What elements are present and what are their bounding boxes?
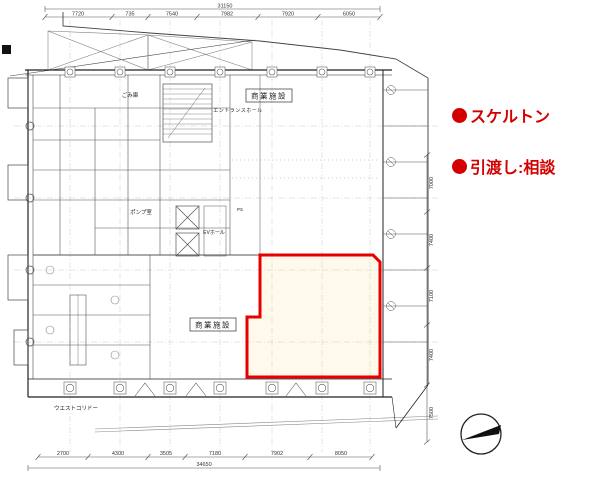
dim-bottom-seg-4: 7180 xyxy=(209,451,221,457)
dim-right-seg-2: 7400 xyxy=(429,234,435,246)
note-skeleton-label: スケルトン xyxy=(470,103,550,127)
dim-bottom-seg-6: 8050 xyxy=(335,451,347,457)
dim-bottom-seg-3: 3505 xyxy=(160,451,172,457)
dim-top-seg-2: 735 xyxy=(125,12,134,18)
note-handover-label: 引渡し:相談 xyxy=(470,154,555,178)
dim-bottom-seg-2: 4300 xyxy=(112,451,124,457)
dim-bottom-seg-5: 7902 xyxy=(271,451,283,457)
dim-top-total: 31150 xyxy=(218,4,233,10)
dim-top-seg-6: 6050 xyxy=(343,12,355,18)
note-handover: 引渡し:相談 xyxy=(452,154,555,178)
dim-bottom-seg-1: 2700 xyxy=(57,451,69,457)
dim-right-seg-3: 7100 xyxy=(429,290,435,302)
dim-top-seg-3: 7540 xyxy=(166,12,178,18)
label-entrance-hall: エントランスホール xyxy=(213,108,262,114)
dim-right-seg-5: 7500 xyxy=(429,407,435,419)
site-marker xyxy=(2,45,11,54)
red-bullet-icon xyxy=(452,159,467,174)
floor-plan-screenshot: 31150 7720 735 7540 7982 7920 6050 2700 … xyxy=(0,0,600,484)
label-commercial-lower: 商業施設 xyxy=(195,320,231,330)
dimension-bottom-labels: 2700 4300 3505 7180 7902 8050 34650 xyxy=(57,451,347,468)
dim-top-seg-5: 7920 xyxy=(282,12,294,18)
label-pump-room: ポンプ室 xyxy=(130,208,152,216)
bottom-column-row xyxy=(64,382,376,396)
dimension-top-labels: 31150 7720 735 7540 7982 7920 6050 xyxy=(72,4,355,18)
dim-top-seg-1: 7720 xyxy=(72,12,84,18)
label-commercial-upper: 商業施設 xyxy=(251,91,287,101)
dim-bottom-total: 34650 xyxy=(196,462,211,468)
note-skeleton: スケルトン xyxy=(452,103,550,127)
right-bay-strip xyxy=(383,86,428,343)
top-column-row xyxy=(65,67,375,77)
floor-plan-drawing: 31150 7720 735 7540 7982 7920 6050 2700 … xyxy=(0,0,600,484)
red-bullet-icon xyxy=(452,108,467,123)
dim-right-seg-4: 7400 xyxy=(429,349,435,361)
compass-icon xyxy=(461,414,501,454)
dimension-top xyxy=(43,6,383,20)
dim-right-seg-1: 7000 xyxy=(429,177,435,189)
label-pipe-shaft: PS xyxy=(237,207,243,212)
label-west-corridor: ウエストコリドー xyxy=(54,404,98,412)
ramp-hatch-area xyxy=(48,31,252,70)
left-edge-details xyxy=(2,45,34,365)
label-ev-hall: EVホール xyxy=(203,230,225,236)
highlight-region xyxy=(247,255,380,377)
dim-top-seg-4: 7982 xyxy=(221,12,233,18)
stair xyxy=(163,84,212,142)
label-garbage-room: ごみ庫 xyxy=(122,91,139,99)
